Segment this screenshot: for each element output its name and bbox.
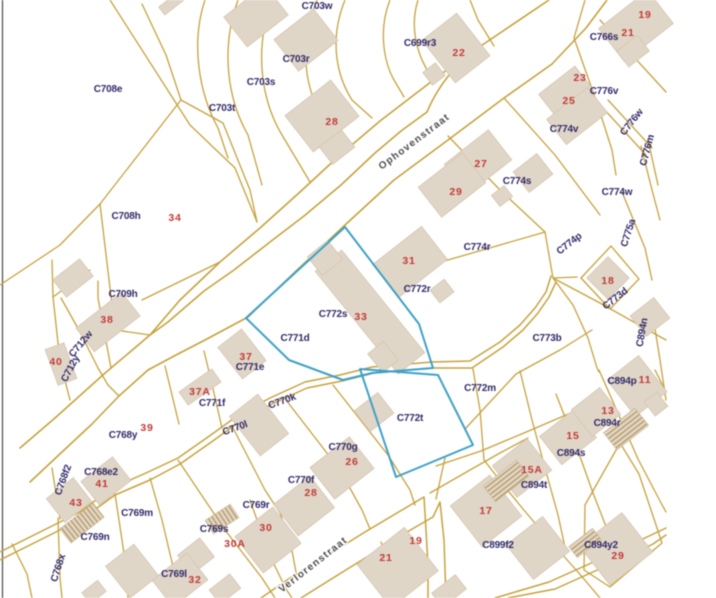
svg-text:32: 32 bbox=[188, 574, 201, 586]
svg-text:C770f: C770f bbox=[288, 475, 315, 486]
svg-text:21: 21 bbox=[379, 552, 392, 564]
svg-text:28: 28 bbox=[325, 116, 338, 128]
svg-text:43: 43 bbox=[69, 497, 82, 509]
svg-text:C894s: C894s bbox=[557, 448, 586, 459]
svg-text:23: 23 bbox=[573, 72, 586, 84]
svg-text:C769m: C769m bbox=[121, 508, 153, 519]
svg-text:33: 33 bbox=[354, 311, 367, 323]
svg-text:C774v: C774v bbox=[550, 124, 579, 135]
svg-text:15A: 15A bbox=[521, 464, 543, 476]
svg-text:21: 21 bbox=[621, 27, 634, 39]
svg-text:C773b: C773b bbox=[532, 333, 561, 344]
svg-text:41: 41 bbox=[95, 478, 108, 490]
svg-text:25: 25 bbox=[562, 95, 575, 107]
svg-text:C899f2: C899f2 bbox=[482, 540, 514, 551]
svg-text:29: 29 bbox=[449, 186, 462, 198]
svg-text:C769l: C769l bbox=[161, 569, 187, 580]
svg-text:C772s: C772s bbox=[319, 309, 348, 320]
svg-text:31: 31 bbox=[402, 255, 415, 267]
svg-text:C771e: C771e bbox=[236, 362, 265, 373]
svg-text:C772t: C772t bbox=[397, 413, 424, 424]
svg-text:28: 28 bbox=[304, 487, 317, 499]
svg-text:C774r: C774r bbox=[464, 242, 491, 253]
svg-text:37: 37 bbox=[239, 351, 252, 363]
svg-text:C708e: C708e bbox=[94, 84, 123, 95]
svg-text:C769n: C769n bbox=[80, 532, 109, 543]
svg-text:27: 27 bbox=[474, 158, 487, 170]
svg-text:37A: 37A bbox=[189, 386, 211, 398]
svg-text:34: 34 bbox=[168, 212, 181, 224]
svg-text:17: 17 bbox=[479, 505, 492, 517]
svg-text:39: 39 bbox=[140, 422, 153, 434]
svg-text:30: 30 bbox=[259, 522, 272, 534]
svg-text:C703r: C703r bbox=[283, 54, 310, 65]
svg-text:C703t: C703t bbox=[209, 103, 236, 114]
svg-text:C894t: C894t bbox=[521, 480, 548, 491]
svg-text:C703w: C703w bbox=[302, 1, 333, 12]
svg-text:C772m: C772m bbox=[464, 383, 496, 394]
svg-text:18: 18 bbox=[601, 275, 614, 287]
svg-text:40: 40 bbox=[49, 356, 62, 368]
svg-text:C703s: C703s bbox=[247, 77, 276, 88]
svg-text:C774w: C774w bbox=[602, 187, 633, 198]
svg-text:C776v: C776v bbox=[590, 86, 619, 97]
svg-text:C699r3: C699r3 bbox=[404, 38, 437, 49]
svg-text:C769s: C769s bbox=[200, 524, 229, 535]
svg-text:38: 38 bbox=[100, 314, 113, 326]
svg-text:C769r: C769r bbox=[243, 500, 270, 511]
svg-text:11: 11 bbox=[639, 374, 652, 386]
svg-text:19: 19 bbox=[409, 535, 422, 547]
svg-text:C771f: C771f bbox=[199, 398, 226, 409]
svg-text:C768y: C768y bbox=[109, 430, 138, 441]
svg-text:19: 19 bbox=[638, 9, 651, 21]
svg-text:C771d: C771d bbox=[280, 333, 309, 344]
svg-text:C766s: C766s bbox=[590, 32, 619, 43]
svg-text:C770g: C770g bbox=[328, 442, 357, 453]
svg-text:C709h: C709h bbox=[108, 289, 137, 300]
svg-text:26: 26 bbox=[345, 456, 358, 468]
svg-text:C708h: C708h bbox=[111, 211, 140, 222]
svg-text:C768e2: C768e2 bbox=[84, 467, 118, 478]
svg-text:C894r: C894r bbox=[594, 418, 621, 429]
svg-text:30A: 30A bbox=[224, 538, 246, 550]
svg-text:29: 29 bbox=[611, 550, 624, 562]
svg-text:C772r: C772r bbox=[404, 284, 431, 295]
svg-text:13: 13 bbox=[601, 405, 614, 417]
svg-text:C774s: C774s bbox=[503, 176, 532, 187]
svg-text:15: 15 bbox=[566, 430, 579, 442]
svg-text:22: 22 bbox=[452, 47, 465, 59]
svg-text:C894p: C894p bbox=[607, 376, 636, 387]
